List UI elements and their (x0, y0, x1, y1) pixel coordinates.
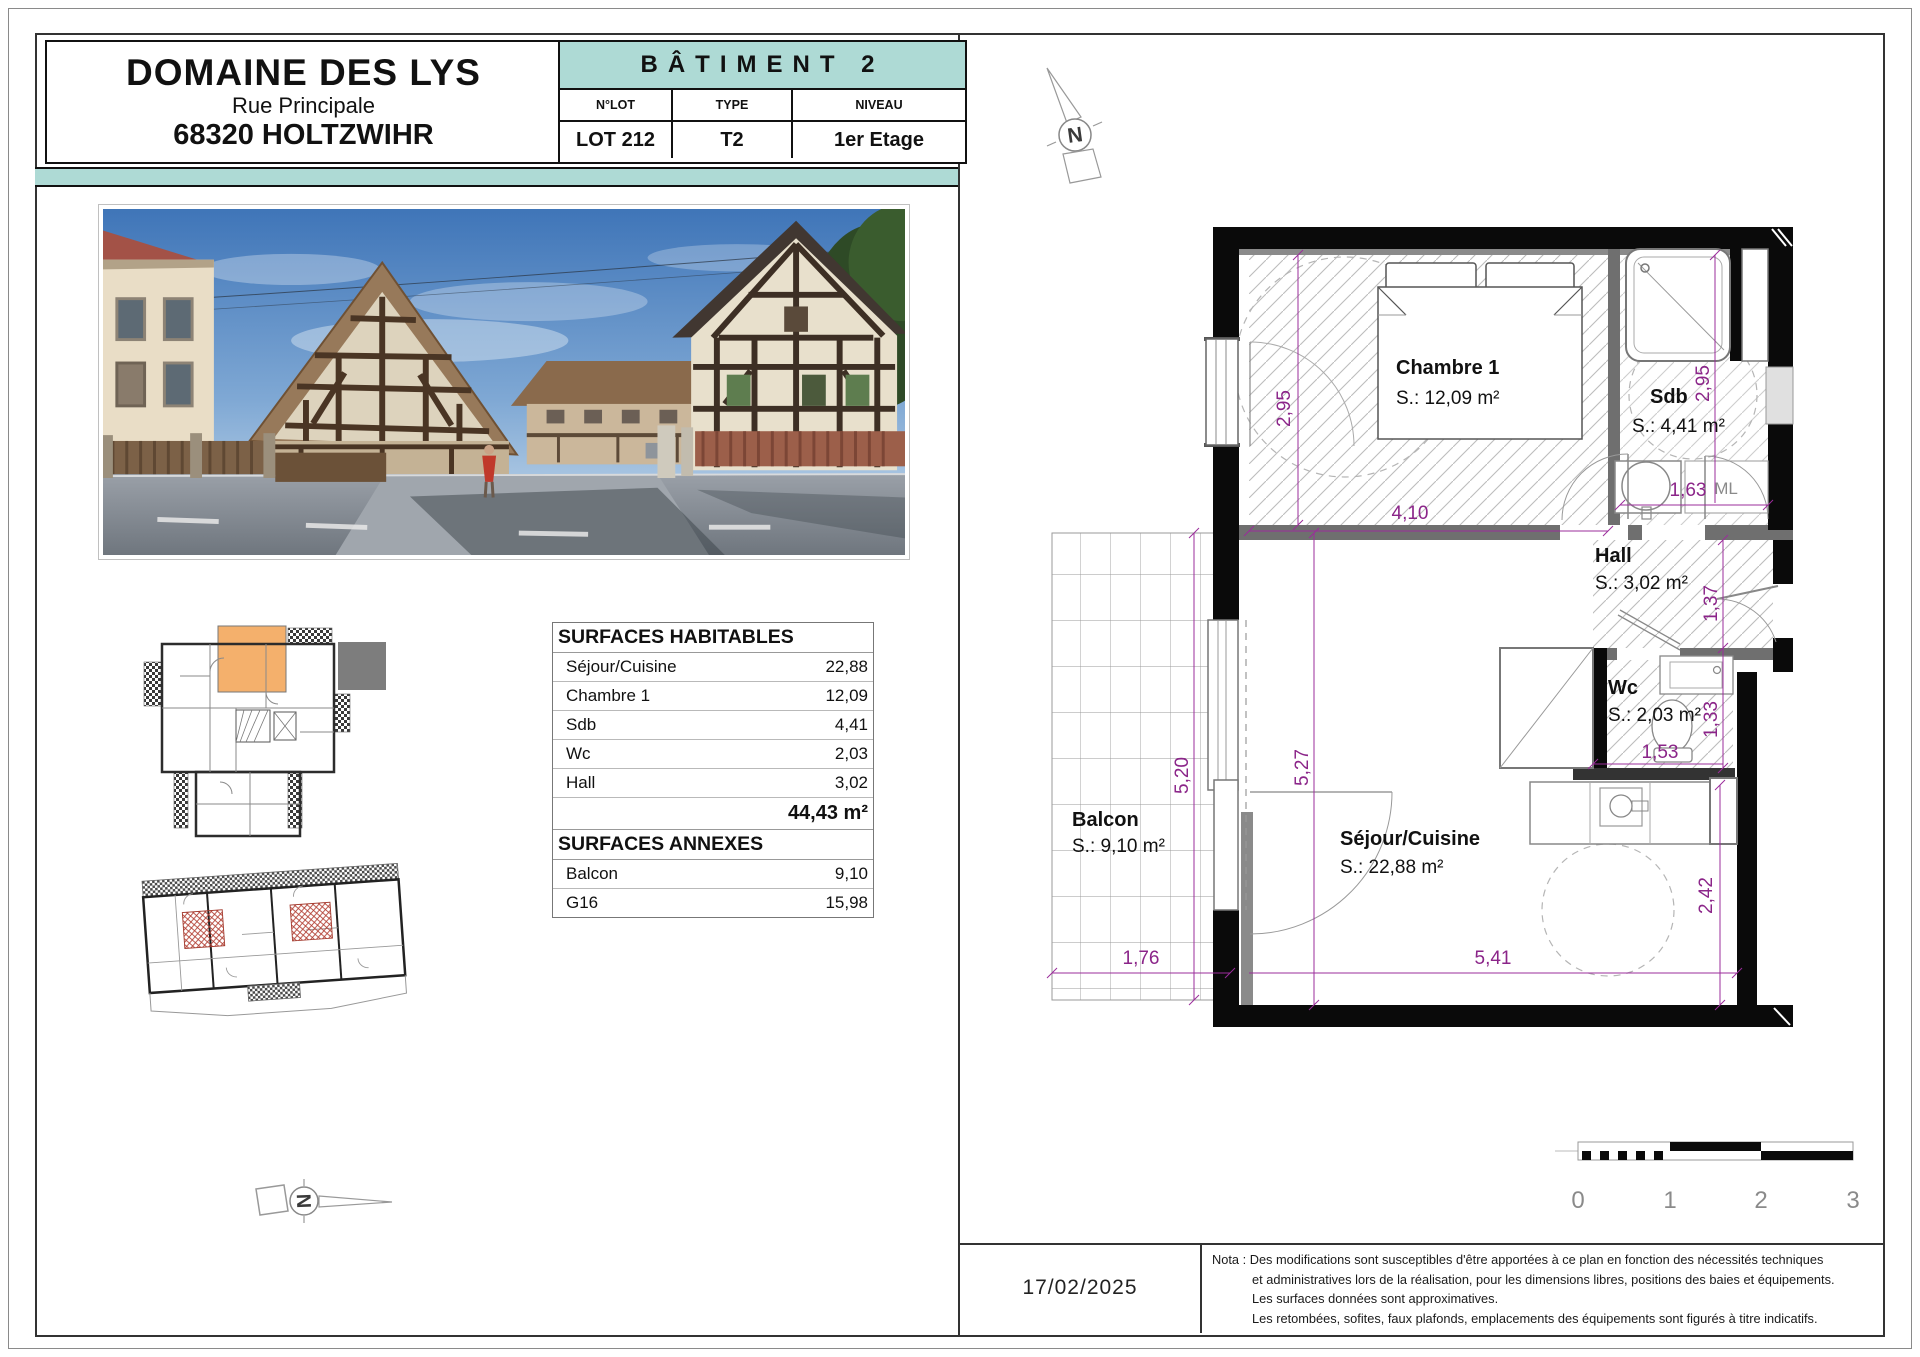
nota-line: Les retombées, sofites, faux plafonds, e… (1212, 1309, 1880, 1329)
scale-0: 0 (1571, 1187, 1584, 1214)
nota-line: et administratives lors de la réalisatio… (1212, 1270, 1880, 1290)
row-label: Chambre 1 (566, 686, 650, 706)
photo-frame (98, 204, 910, 560)
dim-wc-width: 1,53 (1642, 742, 1679, 763)
row-label: Séjour/Cuisine (566, 657, 677, 677)
project-name: DOMAINE DES LYS (126, 53, 481, 93)
table-row: Wc 2,03 (553, 740, 873, 769)
nota-line: Nota : Des modifications sont susceptibl… (1212, 1250, 1880, 1270)
wc-sink (1660, 656, 1733, 694)
dim-sdb-width: 1,63 (1670, 480, 1707, 501)
north-letter: N (1066, 123, 1084, 148)
project-street: Rue Principale (232, 93, 375, 119)
key-plan-level (140, 612, 440, 852)
building-title: BÂTIMENT 2 (560, 42, 965, 90)
row-value: 22,88 (825, 657, 868, 677)
lot-info-table: BÂTIMENT 2 N°LOT TYPE NIVEAU LOT 212 T2 … (558, 40, 967, 164)
row-label: Wc (566, 744, 591, 764)
sejour-area: S.: 22,88 m² (1340, 857, 1444, 878)
north-arrow-icon: N (240, 1165, 400, 1245)
key-plan-building (128, 862, 428, 1062)
surfaces-total: 44,43 m² (553, 798, 873, 830)
row-value: 3,02 (835, 773, 868, 793)
level-header: NIVEAU (793, 90, 965, 122)
scale-1: 1 (1663, 1187, 1676, 1214)
balcon-area: S.: 9,10 m² (1072, 836, 1165, 857)
storage-closet (1500, 648, 1593, 768)
chambre-label: Chambre 1 (1396, 357, 1499, 379)
surfaces-habitables-title: SURFACES HABITABLES (553, 623, 873, 653)
row-label: G16 (566, 893, 598, 913)
dim-chambre-height: 2,95 (1274, 390, 1295, 427)
footer-divider (1200, 1243, 1202, 1333)
row-value: 4,41 (835, 715, 868, 735)
scale-bar: 0 1 2 3 (1555, 1142, 1860, 1214)
footer-border (960, 1243, 1883, 1245)
sdb-closet (1742, 249, 1768, 361)
teal-band (35, 167, 958, 187)
scale-3: 3 (1846, 1187, 1859, 1214)
dim-balcon-width: 1,76 (1123, 948, 1160, 969)
row-value: 9,10 (835, 864, 868, 884)
row-label: Sdb (566, 715, 596, 735)
balcony-grid (1052, 533, 1230, 1000)
table-row: Balcon 9,10 (553, 860, 873, 889)
surfaces-annexes-title: SURFACES ANNEXES (553, 830, 873, 860)
wall-niche (1766, 367, 1793, 424)
dim-kitchen-height: 2,42 (1696, 877, 1717, 914)
row-label: Hall (566, 773, 595, 793)
plan-date: 17/02/2025 (960, 1276, 1200, 1300)
bed (1378, 263, 1582, 439)
wc-area: S.: 2,03 m² (1608, 705, 1701, 726)
row-value: 15,98 (825, 893, 868, 913)
table-row: Séjour/Cuisine 22,88 (553, 653, 873, 682)
level-value: 1er Etage (793, 122, 965, 158)
lot-header: N°LOT (560, 90, 673, 122)
type-value: T2 (673, 122, 793, 158)
gray-annex (338, 642, 386, 690)
street-photo (103, 209, 905, 555)
dim-sdb-height: 2,95 (1693, 365, 1714, 402)
north-letter: N (292, 1193, 314, 1208)
row-value: 12,09 (825, 686, 868, 706)
sdb-label: Sdb (1650, 386, 1688, 408)
table-row: Sdb 4,41 (553, 711, 873, 740)
north-arrow-icon: N (1047, 68, 1102, 183)
shower (1626, 249, 1730, 361)
floor-plan: N (960, 22, 1885, 1335)
wc-label: Wc (1608, 677, 1638, 699)
kitchen-counter (1530, 778, 1737, 844)
type-header: TYPE (673, 90, 793, 122)
row-value: 2,03 (835, 744, 868, 764)
surfaces-table: SURFACES HABITABLES Séjour/Cuisine 22,88… (552, 622, 874, 918)
table-row: Hall 3,02 (553, 769, 873, 798)
dim-chambre-width: 4,10 (1392, 503, 1429, 524)
dim-sejour-width: 5,41 (1475, 948, 1512, 969)
title-block: DOMAINE DES LYS Rue Principale 68320 HOL… (45, 40, 562, 164)
hall-label: Hall (1595, 545, 1632, 567)
balcon-label: Balcon (1072, 809, 1139, 831)
hall-area: S.: 3,02 m² (1595, 573, 1688, 594)
ml-label: ML (1714, 479, 1738, 498)
sdb-area: S.: 4,41 m² (1632, 416, 1725, 437)
sejour-label: Séjour/Cuisine (1340, 828, 1480, 850)
dim-wc-height: 1,33 (1701, 701, 1722, 738)
nota-line: Les surfaces données sont approximatives… (1212, 1289, 1880, 1309)
row-label: Balcon (566, 864, 618, 884)
table-row: G16 15,98 (553, 889, 873, 917)
table-row: Chambre 1 12,09 (553, 682, 873, 711)
plan-sheet: DOMAINE DES LYS Rue Principale 68320 HOL… (0, 0, 1920, 1357)
dim-sejour-height: 5,27 (1292, 749, 1313, 786)
chambre-area: S.: 12,09 m² (1396, 388, 1500, 409)
lot-value: LOT 212 (560, 122, 673, 158)
nota-text: Nota : Des modifications sont susceptibl… (1212, 1250, 1880, 1328)
project-city: 68320 HOLTZWIHR (173, 119, 434, 151)
dim-hall-height: 1,37 (1701, 585, 1722, 622)
scale-2: 2 (1754, 1187, 1767, 1214)
dim-balcon-height: 5,20 (1172, 757, 1193, 794)
